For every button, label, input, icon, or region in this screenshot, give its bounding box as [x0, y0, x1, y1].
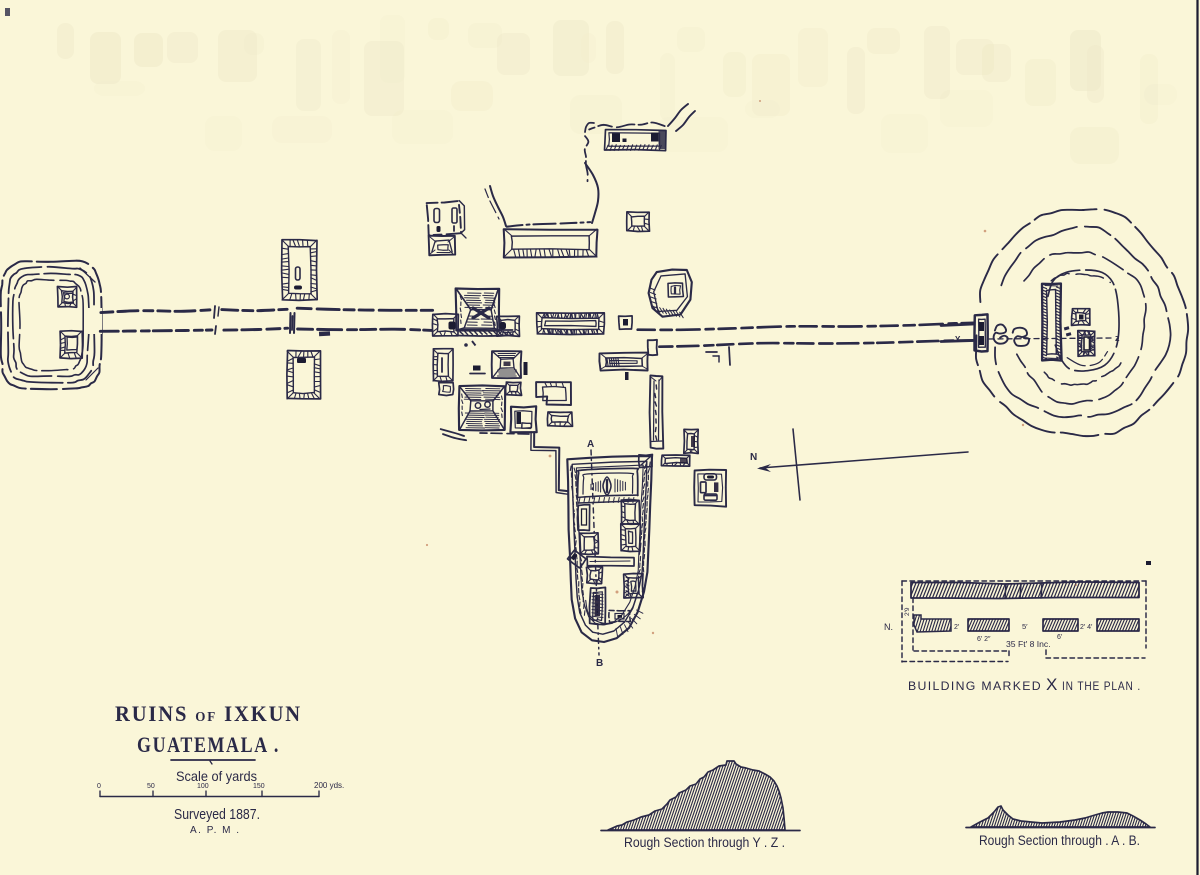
svg-text:0: 0 — [97, 783, 101, 790]
svg-text:6′ 2″: 6′ 2″ — [977, 636, 991, 643]
svg-text:Surveyed 1887.: Surveyed 1887. — [174, 807, 260, 823]
svg-text:5′: 5′ — [1022, 622, 1028, 631]
svg-text:50: 50 — [147, 783, 155, 790]
svg-text:100: 100 — [197, 783, 209, 790]
svg-text:200 yds.: 200 yds. — [314, 781, 344, 790]
svg-text:A. P. M .: A. P. M . — [190, 825, 241, 836]
svg-text:N.: N. — [884, 622, 893, 632]
svg-text:A: A — [587, 439, 594, 450]
svg-text:2′: 2′ — [954, 624, 960, 631]
svg-text:Y.: Y. — [955, 335, 962, 344]
svg-text:6′: 6′ — [1057, 634, 1063, 641]
svg-text:IN THE PLAN .: IN THE PLAN . — [1062, 679, 1141, 693]
svg-text:Rough Section through Y . Z: Rough Section through Y . Z . — [624, 835, 785, 850]
svg-text:z: z — [1115, 333, 1120, 343]
svg-text:35 Ft′ 8 Inc.: 35 Ft′ 8 Inc. — [1006, 639, 1051, 649]
svg-text:BUILDING MARKED: BUILDING MARKED — [908, 679, 1042, 693]
svg-text:150: 150 — [253, 783, 265, 790]
svg-text:Rough Section through . A .: Rough Section through . A . B. — [979, 833, 1140, 848]
svg-text:X: X — [1046, 675, 1057, 694]
svg-text:GUATEMALA .: GUATEMALA . — [137, 732, 280, 757]
svg-text:B: B — [596, 658, 603, 669]
svg-text:2′ 4′: 2′ 4′ — [1080, 624, 1093, 631]
svg-text:2′9: 2′9 — [904, 607, 911, 616]
svg-text:Scale of yards: Scale of yards — [176, 768, 257, 784]
svg-text:N: N — [750, 452, 757, 463]
